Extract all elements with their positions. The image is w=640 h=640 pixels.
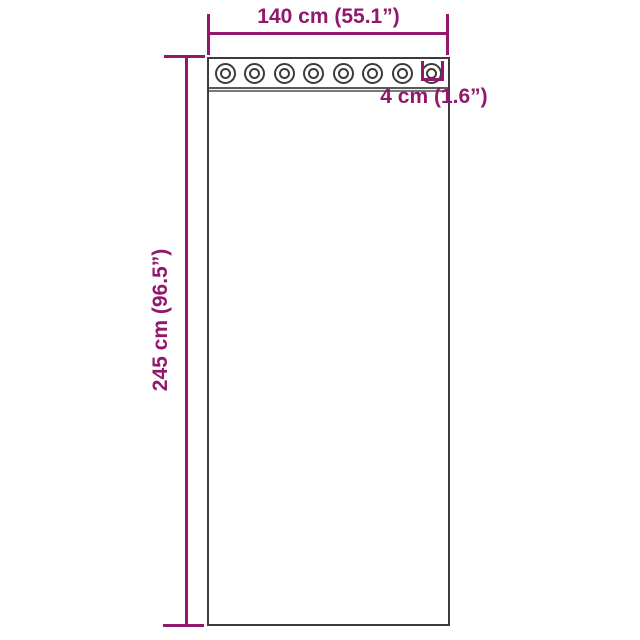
grommet-inner-ring bbox=[279, 68, 290, 79]
grommet-inner-ring bbox=[249, 68, 260, 79]
grommet-inner-ring bbox=[220, 68, 231, 79]
grommet-icon bbox=[244, 63, 265, 84]
grommet-dimension-line bbox=[421, 78, 444, 81]
height-dimension-line bbox=[185, 57, 188, 627]
height-dimension-tick-top bbox=[164, 55, 205, 58]
grommet-icon bbox=[362, 63, 383, 84]
grommet-icon bbox=[303, 63, 324, 84]
grommet-inner-ring bbox=[308, 68, 319, 79]
grommet-inner-ring bbox=[426, 68, 437, 79]
curtain-dimension-diagram: 140 cm (55.1”) 245 cm (96.5”) 4 cm (1.6”… bbox=[0, 0, 640, 640]
grommet-row bbox=[209, 62, 448, 84]
grommet-icon bbox=[333, 63, 354, 84]
height-dimension-label: 245 cm (96.5”) bbox=[150, 230, 172, 410]
grommet-inner-ring bbox=[338, 68, 349, 79]
grommet-icon bbox=[215, 63, 236, 84]
curtain-panel bbox=[207, 57, 450, 626]
width-dimension-label: 140 cm (55.1”) bbox=[207, 6, 450, 28]
grommet-dimension-label: 4 cm (1.6”) bbox=[374, 86, 494, 108]
grommet-inner-ring bbox=[397, 68, 408, 79]
grommet-inner-ring bbox=[367, 68, 378, 79]
grommet-icon bbox=[274, 63, 295, 84]
grommet-icon bbox=[392, 63, 413, 84]
width-dimension-line bbox=[208, 32, 448, 35]
height-dimension-tick-bottom bbox=[163, 624, 204, 627]
